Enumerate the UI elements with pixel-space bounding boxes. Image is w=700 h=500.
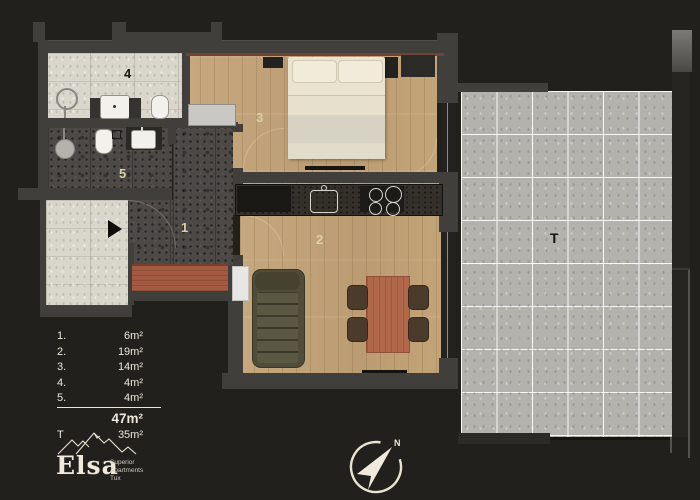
kitchen-sink — [310, 190, 338, 213]
entrance-arrow — [108, 220, 122, 238]
pillow — [338, 60, 383, 83]
wall-entry-bottom — [40, 305, 132, 317]
brand-tagline-line: Superior — [110, 459, 143, 467]
wall-terrace-pillar — [672, 30, 692, 72]
legend-room-area: 4m² — [124, 376, 143, 392]
drain-box — [112, 130, 121, 139]
wall-living-bottom — [222, 373, 458, 389]
wall-terrace-bottom — [458, 433, 550, 444]
legend-room-area: 4m² — [124, 391, 143, 407]
wardrobe — [188, 104, 236, 126]
wall-entry-left — [40, 200, 46, 308]
pillow — [292, 60, 337, 83]
legend-row: 5. 4m² — [57, 391, 143, 407]
legend-room-area: 6m² — [124, 329, 143, 345]
bedroom-bench — [305, 166, 365, 170]
window-living-terrace — [441, 232, 456, 358]
room-label-bathroom: 4 — [124, 66, 132, 81]
floor-plan-page: 4 5 1 3 2 T 1. 6m² 2. 19m² 3. 14m² 4. 4m… — [0, 0, 700, 500]
shower-head — [55, 139, 75, 159]
legend-divider — [57, 407, 161, 408]
legend-room-number: 1. — [57, 329, 66, 345]
room-label-terrace: T — [550, 230, 559, 246]
kitchen-faucet — [321, 185, 327, 191]
sofa-backrest — [255, 272, 300, 290]
sideboard — [132, 264, 228, 291]
room-label-hall: 1 — [181, 220, 189, 235]
wall-bedroom-right — [437, 33, 458, 103]
legend-room-number: 2. — [57, 345, 66, 361]
burner — [386, 202, 400, 216]
legend-total-row: 47m² — [57, 410, 143, 427]
dining-chair — [347, 317, 368, 342]
shower-stem — [64, 106, 66, 118]
sink-faucet-dot — [113, 105, 116, 108]
legend-room-number: 5. — [57, 391, 66, 407]
entry-landing-floor — [46, 200, 128, 305]
bed — [288, 57, 385, 158]
wall-bath-wc-divider — [38, 118, 188, 128]
legend-room-number: 4. — [57, 376, 66, 392]
terrace-railing — [688, 268, 690, 458]
wall-tab — [33, 22, 45, 42]
terrace-floor — [461, 91, 672, 437]
legend-room-area: 14m² — [118, 360, 143, 376]
burner — [385, 186, 402, 203]
sofa — [252, 269, 305, 368]
brand-tagline-line: Apartments — [110, 467, 143, 475]
compass-icon: N — [342, 430, 412, 500]
legend-row: 3. 14m² — [57, 360, 143, 376]
shower-head — [56, 88, 78, 110]
terrace-edge-line — [550, 437, 672, 440]
toilet — [95, 129, 113, 154]
area-legend: 1. 6m² 2. 19m² 3. 14m² 4. 4m² 5. 4m² 47m… — [57, 329, 143, 443]
compass-needle — [357, 447, 392, 490]
wall-tab — [211, 22, 222, 42]
wall-under-wc — [38, 188, 172, 200]
brand-tagline-line: Tux — [110, 475, 143, 483]
toilet — [151, 95, 169, 119]
shower-stem — [63, 128, 65, 140]
legend-row: 1. 6m² — [57, 329, 143, 345]
compass-north-label: N — [394, 438, 401, 448]
wall-stub — [168, 128, 176, 144]
legend-row: 2. 19m² — [57, 345, 143, 361]
legend-row: 4. 4m² — [57, 376, 143, 392]
wall-top — [38, 40, 456, 53]
terrace-railing — [672, 268, 690, 270]
room-label-bedroom: 3 — [256, 110, 264, 125]
dining-table — [366, 276, 410, 353]
room-label-living: 2 — [316, 232, 324, 247]
legend-total-area: 47m² — [111, 410, 143, 427]
wc-sink — [131, 130, 156, 149]
vanity-cabinet — [129, 98, 141, 118]
legend-room-number: 3. — [57, 360, 66, 376]
dining-chair — [408, 285, 429, 310]
bedroom-rug — [401, 55, 435, 77]
duvet — [288, 95, 385, 159]
wall-tab — [126, 32, 214, 42]
kitchen-cabinet-dark — [237, 186, 291, 212]
burner — [369, 188, 383, 202]
sink-faucet-dot — [141, 127, 143, 132]
brand-tagline: Superior Apartments Tux — [110, 459, 143, 483]
wall-tab — [112, 22, 126, 42]
wall-terrace-top — [456, 83, 548, 92]
nightstand — [263, 57, 283, 68]
door-threshold — [362, 370, 407, 373]
dining-chair — [347, 285, 368, 310]
sofa-cushions — [257, 292, 298, 363]
terrace-railing — [670, 437, 672, 453]
wall-bed-kitchen-div — [233, 172, 443, 183]
room-label-wc: 5 — [119, 166, 127, 181]
burner — [369, 202, 382, 215]
legend-room-area: 19m² — [118, 345, 143, 361]
window-bedroom-terrace — [441, 103, 456, 172]
tall-cabinet — [232, 266, 249, 301]
dining-chair — [408, 317, 429, 342]
wall-right-low — [439, 358, 458, 378]
